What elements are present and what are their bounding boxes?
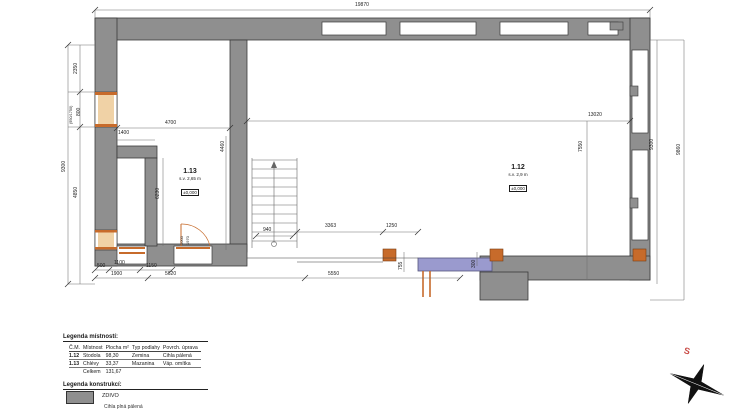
dimension-label: 5550 xyxy=(328,272,339,277)
dimension-label: 755 xyxy=(399,262,404,270)
cell: 1.13 xyxy=(69,360,83,368)
cell: Chlévy xyxy=(83,360,106,368)
col-header: Místnost xyxy=(83,344,106,352)
dimension-label: 3363 xyxy=(325,224,336,229)
dimension-label: 1970 xyxy=(186,236,190,245)
dimension-label: 4460 xyxy=(221,141,226,152)
cell xyxy=(163,368,201,376)
cell xyxy=(132,368,163,376)
dimension-label: 940 xyxy=(263,228,271,233)
staircase xyxy=(252,158,297,248)
dimension-label: (950/1750) xyxy=(70,106,74,124)
dimension-label: 300 xyxy=(472,260,477,268)
cell: Cihla pálená xyxy=(163,352,201,360)
dimension-label: 4850 xyxy=(74,187,79,198)
dimension-label: 1150 xyxy=(146,264,157,269)
col-header: Plocha m² xyxy=(106,344,132,352)
cell xyxy=(69,368,83,376)
room-ceiling-height: s.v. 2,9 m xyxy=(490,172,546,177)
cell: Zemina xyxy=(132,352,163,360)
room-legend: Legenda místností: Č.M. Místnost Plocha … xyxy=(63,334,213,375)
dimension-label: 500 xyxy=(97,264,105,269)
room-number: 1.13 xyxy=(162,168,218,176)
total-value: 131,67 xyxy=(106,368,132,376)
stairs-up-arrow xyxy=(271,161,277,168)
table-header-row: Č.M. Místnost Plocha m² Typ podlahy Povr… xyxy=(69,344,201,352)
table-row: 1.12 Stodola 98,30 Zemina Cihla pálená xyxy=(69,352,201,360)
col-header: Č.M. xyxy=(69,344,83,352)
dimension-label: 1250 xyxy=(386,224,397,229)
table-row: 1.13 Chlévy 33,37 Mazanina Váp. omítka xyxy=(69,360,201,368)
dimension-label: 1000 xyxy=(180,236,184,245)
dimension-label: 9300 xyxy=(650,139,655,150)
dimension-label: 800 xyxy=(77,108,82,116)
masonry-swatch xyxy=(66,391,94,404)
dimension-label: 1400 xyxy=(118,131,129,136)
cell: 98,30 xyxy=(106,352,132,360)
table-total-row: Celkem 131,67 xyxy=(69,368,201,376)
col-header: Povrch. úprava xyxy=(163,344,201,352)
floor-plan-page: 1987093002350(950/1750)80048504700140013… xyxy=(0,0,730,410)
masonry-sublabel: Cihla plná pálená xyxy=(104,404,143,410)
dimension-label: 2350 xyxy=(74,63,79,74)
door-jambs xyxy=(423,271,430,297)
compass-star xyxy=(662,354,730,410)
room-ceiling-height: s.v. 2,65 m xyxy=(162,176,218,181)
dimension-label: 9300 xyxy=(62,161,67,172)
masonry-label: ZDIVO xyxy=(102,393,119,399)
new-masonry-wall xyxy=(418,258,492,271)
room-label-1-13: 1.13 s.v. 2,65 m ±0,000 xyxy=(162,168,218,200)
cell: 33,37 xyxy=(106,360,132,368)
total-label: Celkem xyxy=(83,368,106,376)
dimension-label: 7550 xyxy=(579,141,584,152)
construction-legend-title: Legenda konstrukcí: xyxy=(63,382,208,390)
room-legend-table: Č.M. Místnost Plocha m² Typ podlahy Povr… xyxy=(69,344,201,375)
room-legend-title: Legenda místností: xyxy=(63,334,208,342)
dimension-label: 1900 xyxy=(111,272,122,277)
cell: 1.12 xyxy=(69,352,83,360)
room-number: 1.12 xyxy=(490,164,546,172)
dimension-label: 6230 xyxy=(156,188,161,199)
room-level-mark: ±0,000 xyxy=(509,185,527,192)
dimension-label: 19870 xyxy=(355,3,369,8)
construction-legend: Legenda konstrukcí: ZDIVO Cihla plná pál… xyxy=(63,382,213,390)
cell: Mazanina xyxy=(132,360,163,368)
dimension-label: 1100 xyxy=(114,261,125,266)
room-label-1-12: 1.12 s.v. 2,9 m ±0,000 xyxy=(490,164,546,196)
dimension-label: 5620 xyxy=(165,272,176,277)
dimension-label: 13020 xyxy=(588,113,602,118)
dimension-label: 9860 xyxy=(677,144,682,155)
col-header: Typ podlahy xyxy=(132,344,163,352)
room-level-mark: ±0,000 xyxy=(181,189,199,196)
dimension-label: 4700 xyxy=(165,121,176,126)
cell: Váp. omítka xyxy=(163,360,201,368)
wall-openings xyxy=(95,22,648,264)
cell: Stodola xyxy=(83,352,106,360)
